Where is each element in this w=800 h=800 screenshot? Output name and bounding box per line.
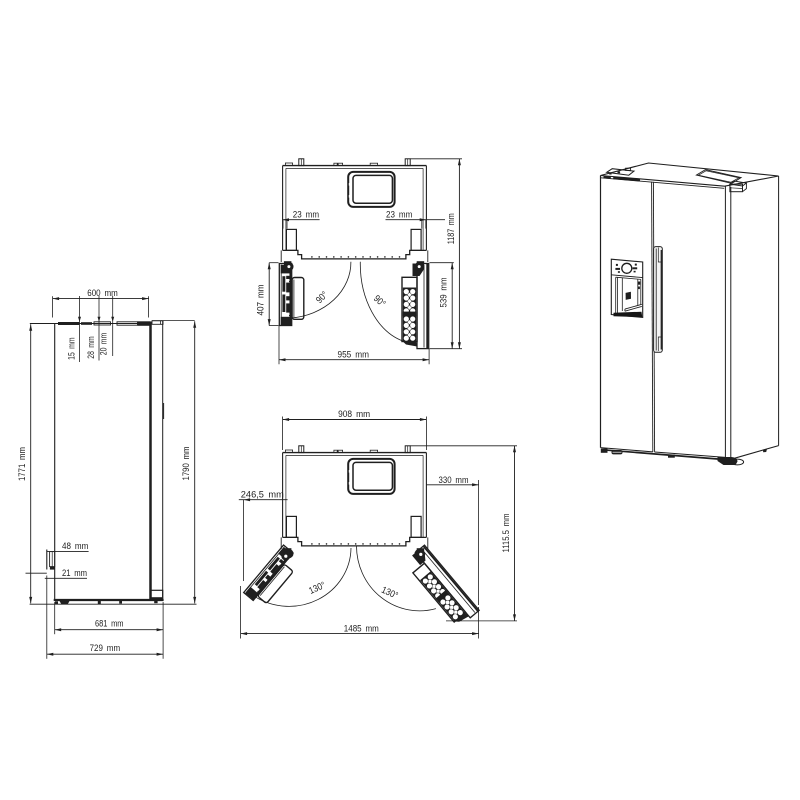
svg-text:23 mm: 23 mm [293, 209, 319, 220]
svg-text:407 mm: 407 mm [255, 284, 266, 315]
svg-text:15 mm: 15 mm [66, 337, 77, 360]
svg-text:246,5 mm: 246,5 mm [241, 489, 284, 500]
svg-text:23 mm: 23 mm [386, 209, 412, 220]
svg-text:1187 mm: 1187 mm [446, 213, 457, 244]
svg-text:539 mm: 539 mm [439, 277, 450, 307]
svg-text:600 mm: 600 mm [87, 288, 118, 299]
svg-text:1115.5 mm: 1115.5 mm [501, 514, 512, 553]
svg-text:48 mm: 48 mm [62, 541, 88, 552]
svg-text:729 mm: 729 mm [90, 643, 121, 654]
svg-text:955 mm: 955 mm [338, 349, 370, 360]
svg-text:681 mm: 681 mm [95, 618, 124, 629]
svg-text:330 mm: 330 mm [439, 475, 469, 486]
svg-text:28 mm: 28 mm [86, 336, 97, 359]
svg-text:20 mm: 20 mm [99, 333, 110, 356]
svg-text:1771 mm: 1771 mm [17, 447, 28, 481]
svg-text:1790 mm: 1790 mm [181, 447, 192, 481]
svg-text:1485 mm: 1485 mm [344, 623, 379, 634]
svg-text:21 mm: 21 mm [62, 568, 87, 579]
svg-text:908 mm: 908 mm [338, 409, 370, 420]
